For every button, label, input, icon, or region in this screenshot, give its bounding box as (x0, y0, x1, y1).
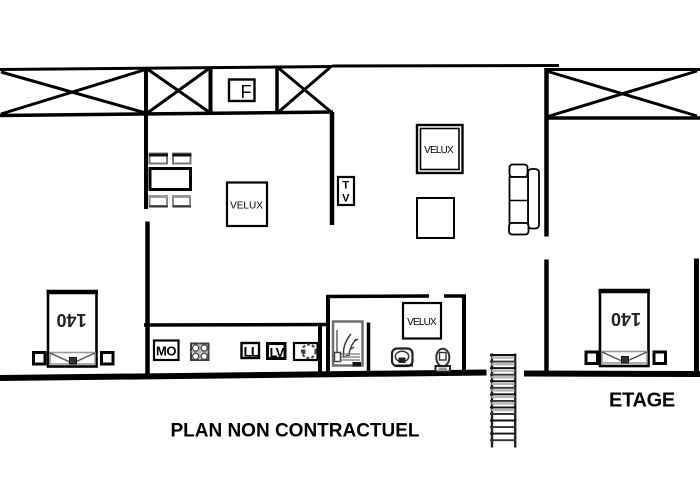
svg-text:T: T (342, 180, 349, 192)
svg-text:VELUX: VELUX (230, 201, 263, 212)
svg-text:PLAN NON CONTRACTUEL: PLAN NON CONTRACTUEL (170, 421, 419, 442)
svg-text:VELUX: VELUX (424, 145, 454, 156)
svg-text:LV: LV (270, 345, 285, 360)
svg-text:140: 140 (56, 310, 86, 330)
svg-text:LL: LL (243, 343, 259, 359)
svg-text:V: V (342, 193, 350, 205)
svg-text:VELUX: VELUX (407, 317, 437, 328)
svg-text:ETAGE: ETAGE (609, 390, 675, 412)
svg-text:140: 140 (611, 309, 641, 329)
svg-text:F: F (241, 82, 252, 102)
svg-text:MO: MO (156, 344, 176, 359)
